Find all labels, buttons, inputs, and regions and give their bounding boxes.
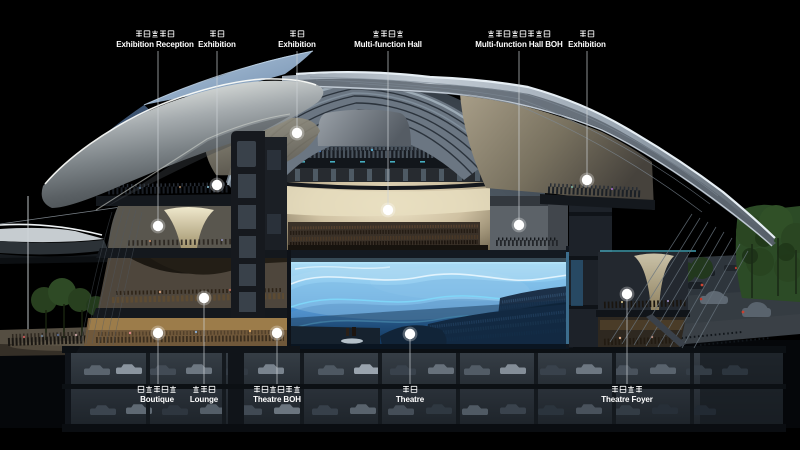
svg-text:Boutique: Boutique: [140, 395, 175, 404]
svg-text:Theatre BOH: Theatre BOH: [253, 395, 301, 404]
svg-text:Exhibition: Exhibition: [278, 40, 316, 49]
svg-text:Multi-function Hall: Multi-function Hall: [354, 40, 422, 49]
svg-text:Theatre: Theatre: [396, 395, 425, 404]
svg-text:Multi-function Hall BOH: Multi-function Hall BOH: [475, 40, 563, 49]
svg-text:Exhibition Reception: Exhibition Reception: [116, 40, 194, 49]
svg-text:Exhibition: Exhibition: [198, 40, 236, 49]
svg-text:Lounge: Lounge: [190, 395, 219, 404]
svg-text:Exhibition: Exhibition: [568, 40, 606, 49]
svg-text:Theatre Foyer: Theatre Foyer: [601, 395, 653, 404]
